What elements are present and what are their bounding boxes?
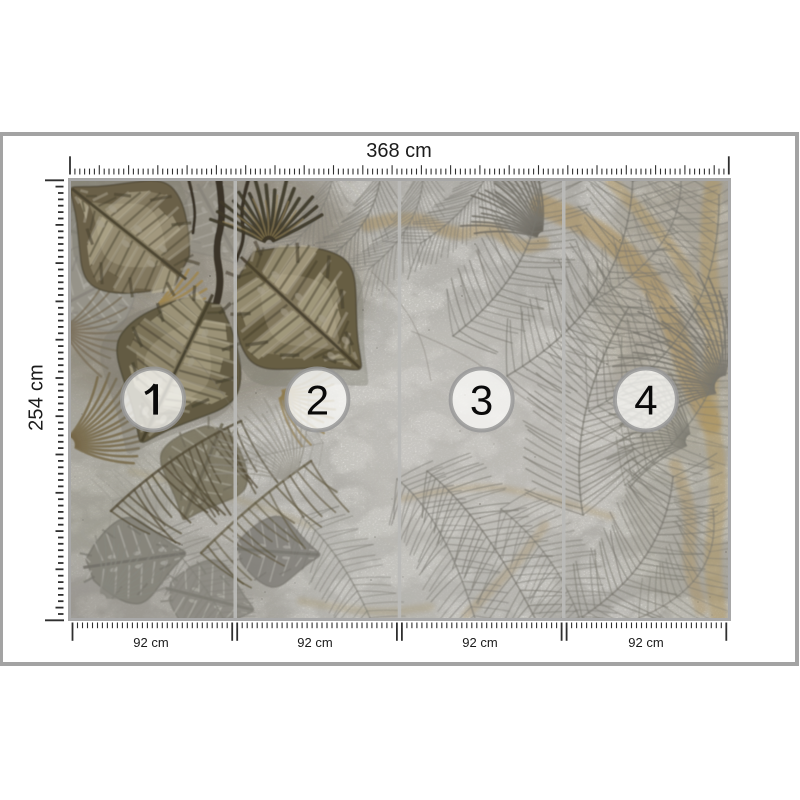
- svg-text:3: 3: [470, 377, 493, 424]
- svg-text:2: 2: [306, 377, 329, 424]
- svg-text:4: 4: [634, 377, 657, 424]
